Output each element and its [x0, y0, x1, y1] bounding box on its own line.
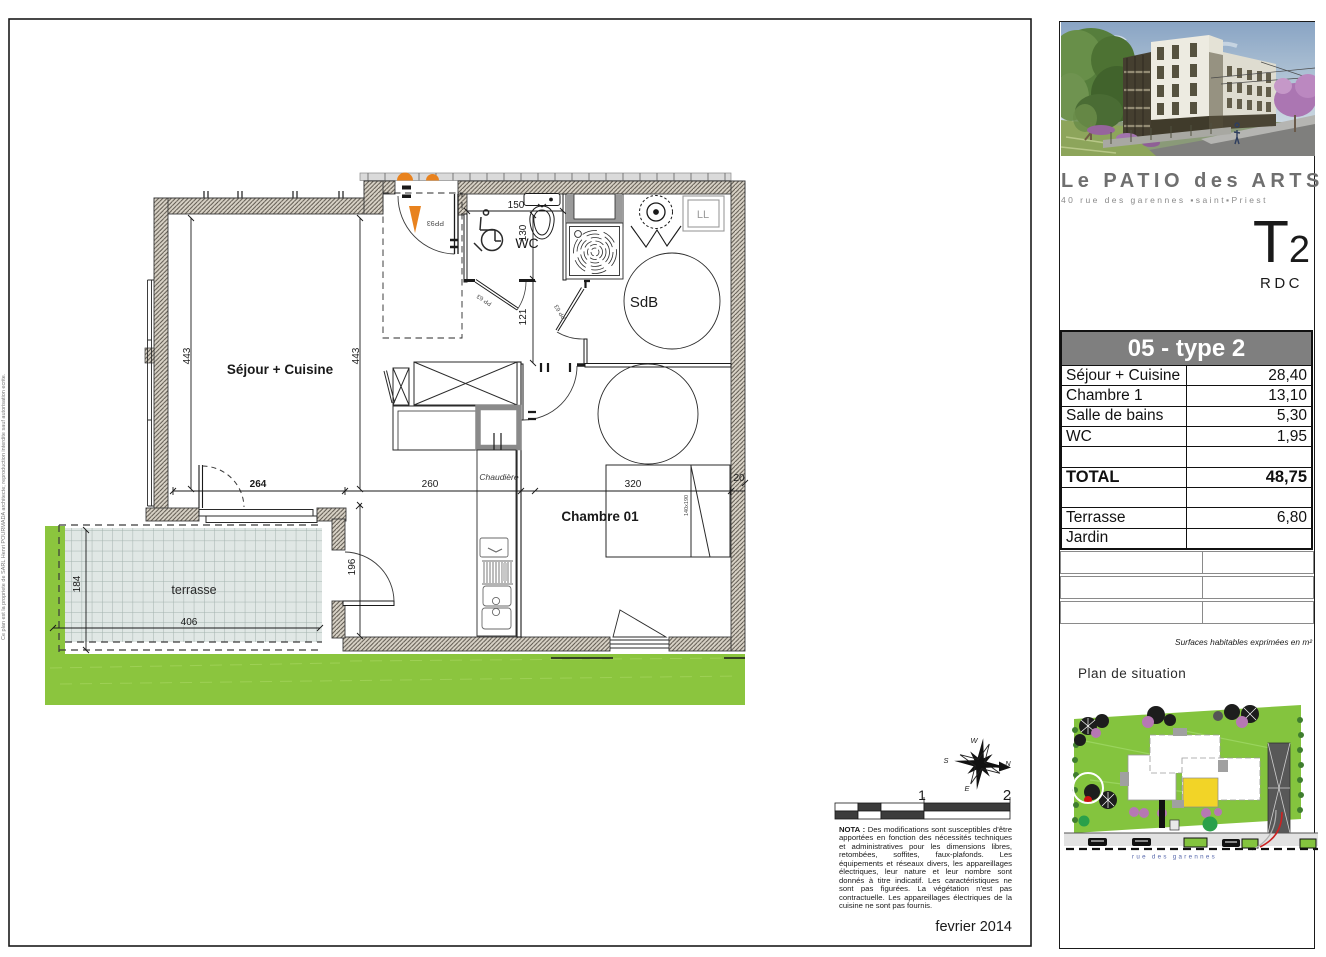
- svg-text:PP 63: PP 63: [476, 292, 493, 306]
- svg-text:PP 63: PP 63: [554, 303, 568, 321]
- svg-text:150: 150: [508, 200, 525, 211]
- svg-text:N: N: [1005, 759, 1011, 768]
- svg-text:terrasse: terrasse: [171, 583, 216, 597]
- svg-text:1: 1: [918, 787, 926, 803]
- svg-text:406: 406: [181, 617, 198, 628]
- svg-text:443: 443: [182, 347, 193, 364]
- svg-text:184: 184: [72, 575, 83, 592]
- svg-text:Ce plan est la propriete de SA: Ce plan est la propriete de SARL Henri P…: [1, 373, 7, 640]
- svg-text:Séjour + Cuisine: Séjour + Cuisine: [227, 362, 334, 377]
- svg-text:443: 443: [351, 347, 362, 364]
- svg-text:121: 121: [518, 308, 529, 325]
- svg-text:W: W: [970, 736, 978, 745]
- svg-text:LL: LL: [697, 209, 709, 221]
- svg-text:rue des garennes: rue des garennes: [1132, 854, 1217, 861]
- svg-text:260: 260: [422, 479, 439, 490]
- svg-text:Chaudière: Chaudière: [479, 472, 518, 482]
- svg-text:2: 2: [1003, 787, 1011, 804]
- svg-text:130: 130: [518, 224, 529, 241]
- svg-text:S: S: [943, 756, 948, 765]
- svg-text:Chambre 01: Chambre 01: [561, 509, 639, 524]
- svg-text:264: 264: [250, 479, 267, 490]
- svg-text:20: 20: [733, 473, 745, 484]
- svg-text:320: 320: [625, 479, 642, 490]
- svg-text:PP93: PP93: [427, 219, 444, 226]
- svg-text:140x190: 140x190: [684, 495, 690, 516]
- svg-text:E: E: [964, 784, 970, 793]
- svg-text:196: 196: [347, 558, 358, 575]
- svg-text:SdB: SdB: [630, 294, 658, 311]
